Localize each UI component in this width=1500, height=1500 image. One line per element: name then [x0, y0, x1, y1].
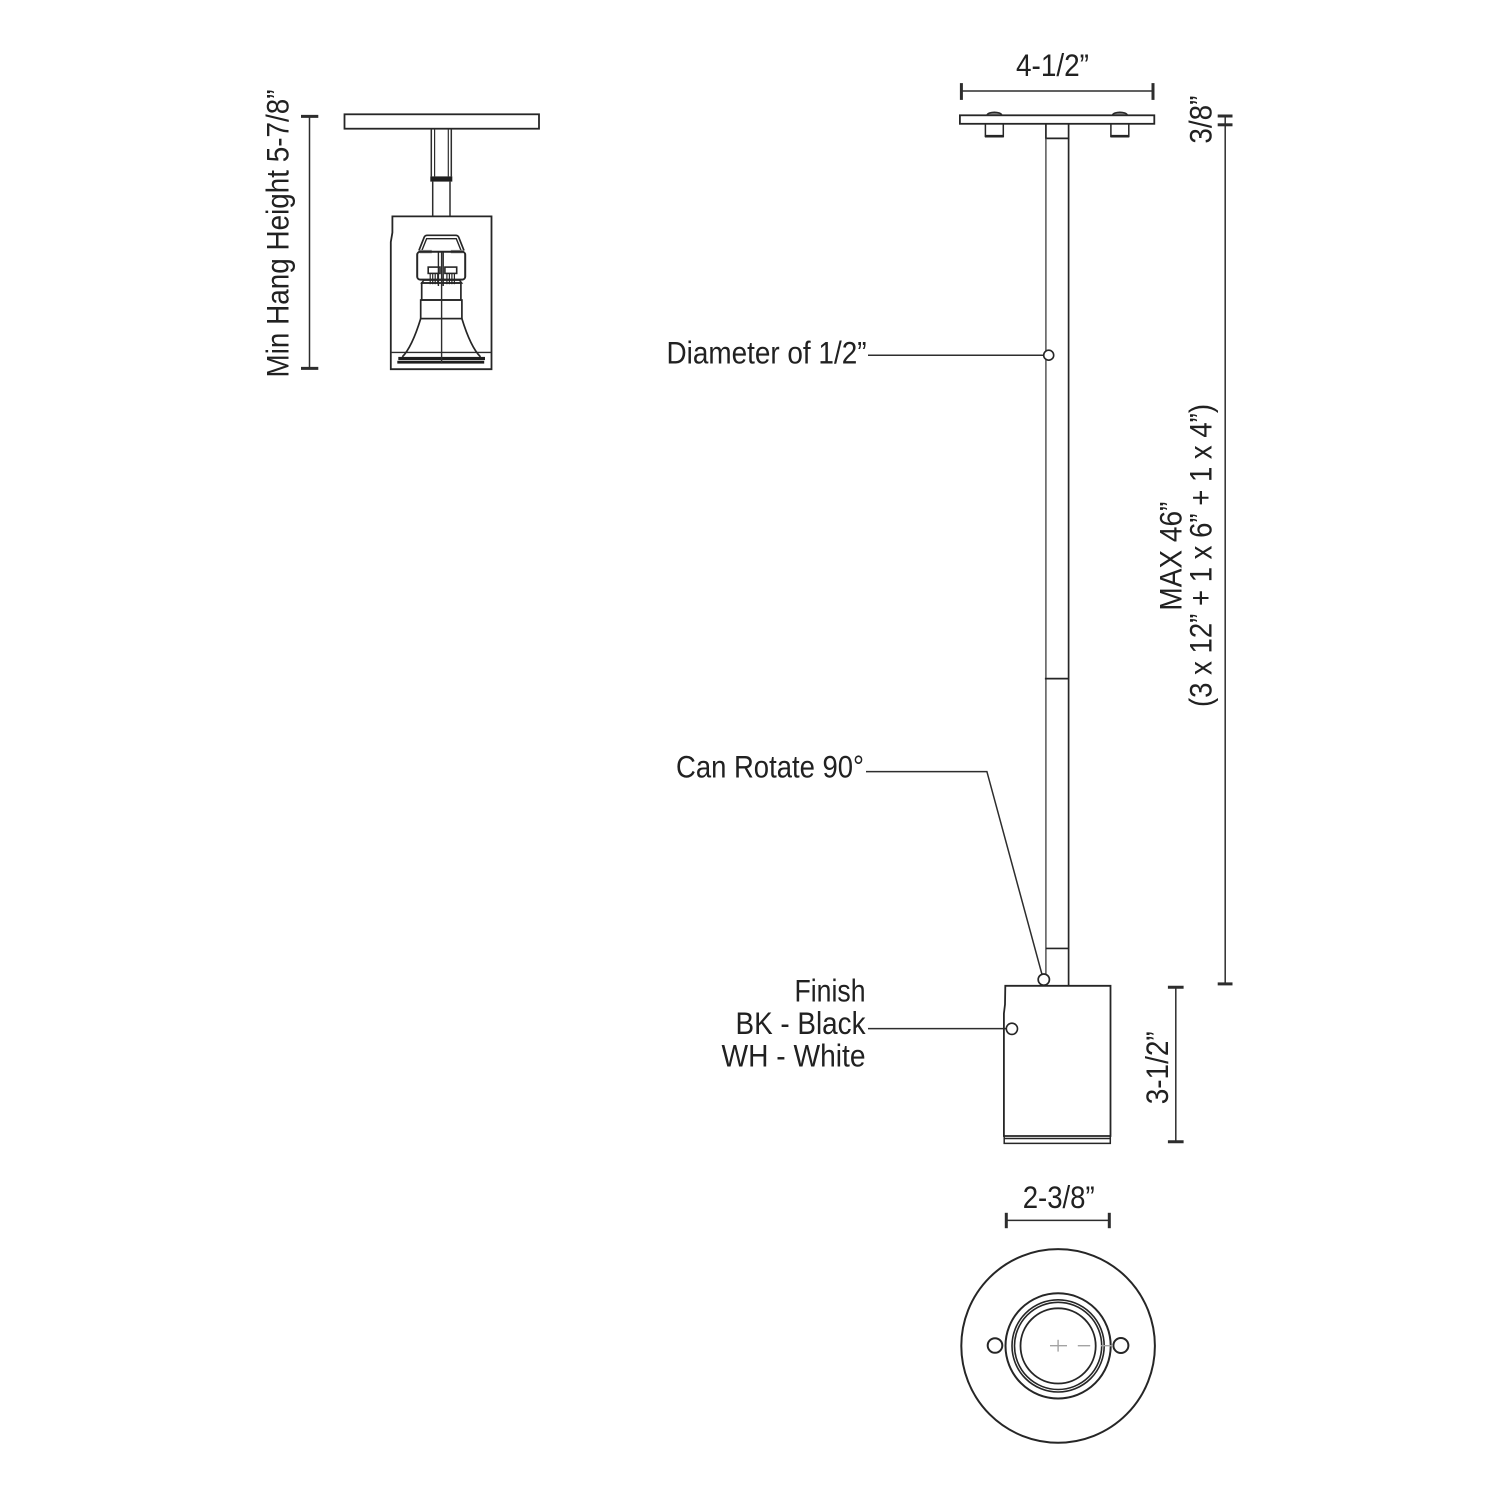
svg-text:BK - Black: BK - Black — [736, 1005, 866, 1041]
svg-text:2-3/8”: 2-3/8” — [1023, 1179, 1095, 1215]
svg-text:Diameter of 1/2”: Diameter of 1/2” — [667, 335, 867, 371]
svg-text:Min Hang Height 5-7/8”: Min Hang Height 5-7/8” — [260, 90, 296, 378]
svg-text:Can Rotate 90°: Can Rotate 90° — [676, 749, 864, 785]
svg-text:WH - White: WH - White — [722, 1038, 866, 1074]
svg-text:(3 x 12” + 1 x 6” + 1 x 4”): (3 x 12” + 1 x 6” + 1 x 4”) — [1182, 404, 1218, 707]
svg-text:Finish: Finish — [795, 973, 866, 1009]
svg-text:3/8”: 3/8” — [1183, 96, 1219, 144]
svg-text:4-1/2”: 4-1/2” — [1016, 47, 1089, 83]
svg-text:3-1/2”: 3-1/2” — [1139, 1031, 1175, 1104]
